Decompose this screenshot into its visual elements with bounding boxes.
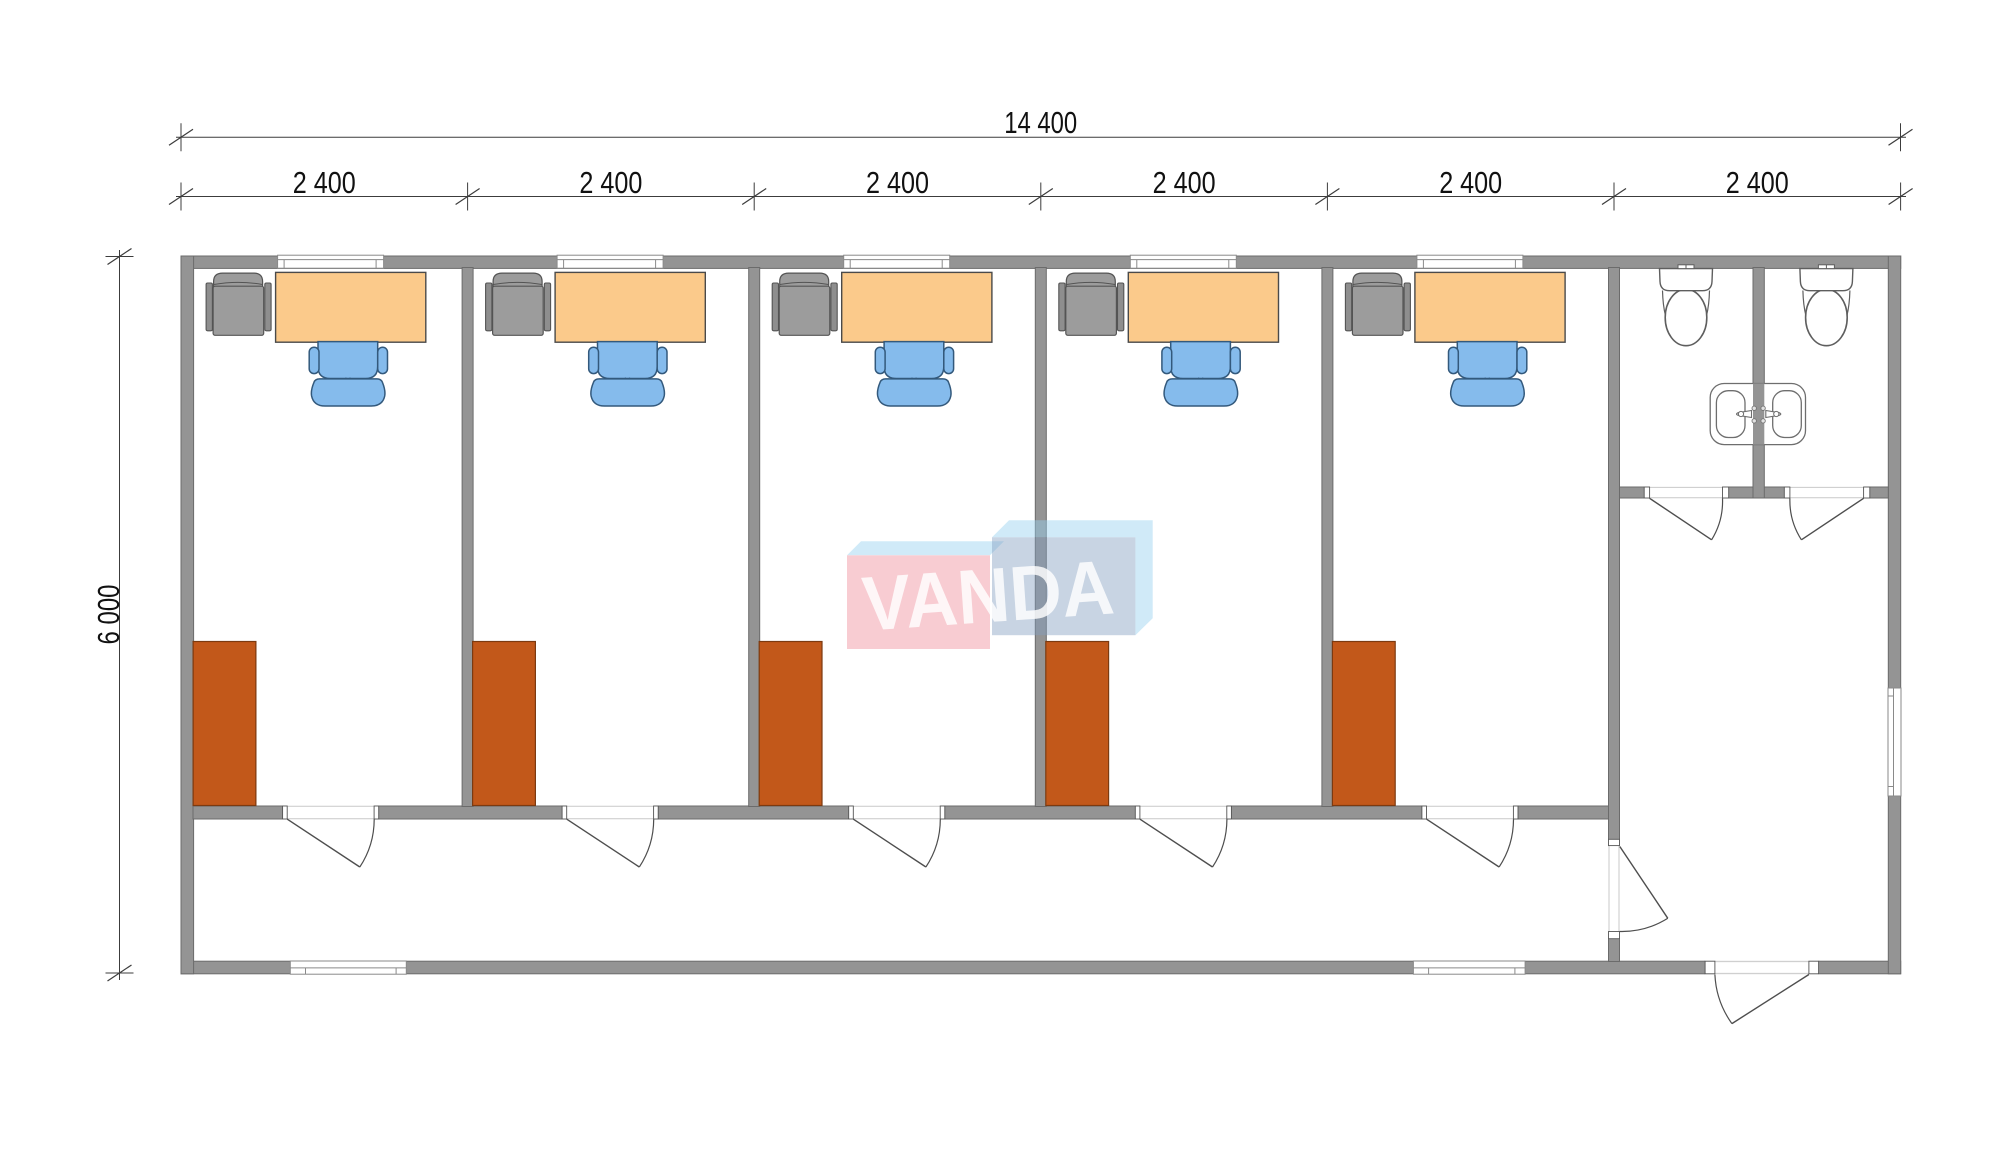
svg-text:2 400: 2 400 bbox=[579, 165, 642, 200]
svg-text:2 400: 2 400 bbox=[1153, 165, 1216, 200]
svg-text:6 000: 6 000 bbox=[91, 585, 126, 645]
svg-text:2 400: 2 400 bbox=[293, 165, 356, 200]
svg-text:2 400: 2 400 bbox=[1439, 165, 1502, 200]
svg-text:14 400: 14 400 bbox=[1004, 105, 1077, 140]
svg-text:2 400: 2 400 bbox=[1726, 165, 1789, 200]
svg-text:2 400: 2 400 bbox=[866, 165, 929, 200]
svg-text:VANDA: VANDA bbox=[859, 544, 1116, 647]
